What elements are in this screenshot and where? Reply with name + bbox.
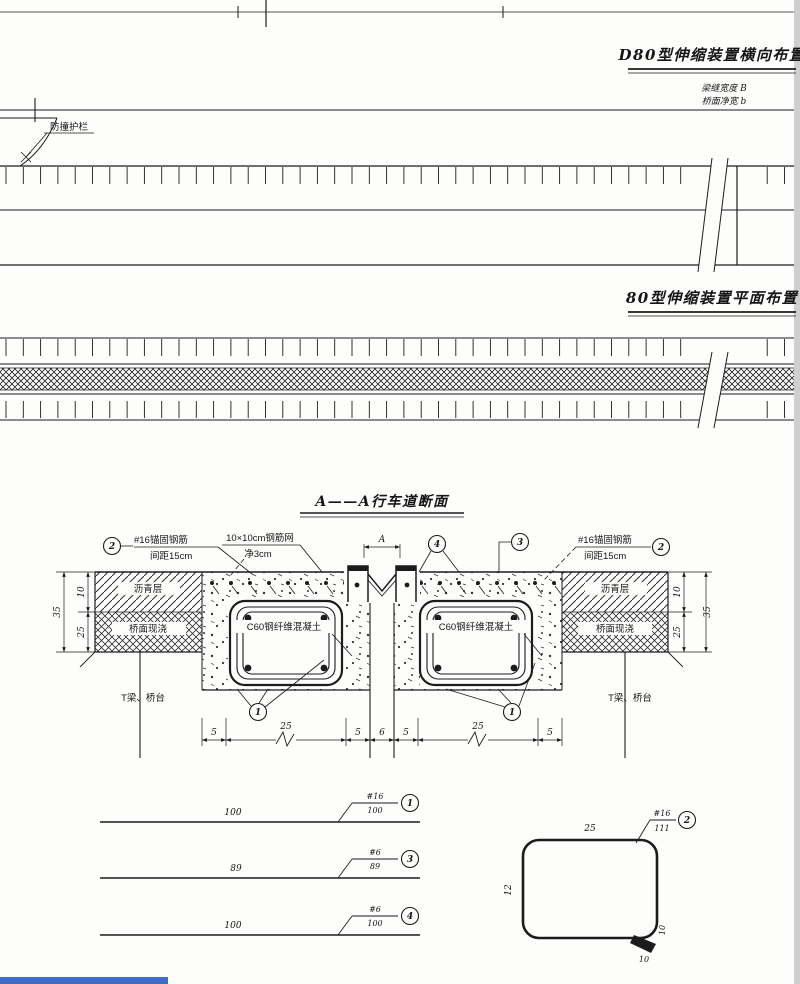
- anchor-rebar-spacing-left: 间距15cm: [150, 550, 192, 562]
- callout-1-right: 1: [509, 708, 515, 718]
- callout-4: 4: [434, 540, 440, 550]
- bar1-total: 100: [367, 806, 382, 815]
- bar4-length: 100: [224, 921, 241, 931]
- stirrup-detail-2: 25 12 #16 111 2 10 10: [504, 809, 696, 964]
- bar4-total: 100: [367, 919, 382, 928]
- dim-5d: 5: [547, 728, 553, 738]
- cad-drawing: D80型伸缩装置横向布置 梁缝宽度 B 桥面净宽 b 防撞护栏: [0, 0, 800, 984]
- bar3-total: 89: [370, 862, 380, 871]
- section-title: A——A行车道断面: [313, 493, 450, 510]
- anchor-rebar-spacing-right: 间距15cm: [584, 550, 626, 562]
- anchor-rebar-label-right: #16锚固钢筋: [578, 534, 632, 546]
- callout-1-left: 1: [255, 708, 261, 718]
- bar-detail-3: 89 #6 89 3: [100, 848, 420, 878]
- dim-6: 6: [379, 728, 385, 738]
- c60-label-right: C60钢纤维混凝土: [439, 621, 514, 633]
- rebar-details: 100 #16 100 1 89 #6 89 3 100 #6 100: [100, 792, 696, 964]
- gap-mark-label: A: [378, 535, 386, 545]
- anchor-rebar-label-left: #16锚固钢筋: [134, 534, 188, 546]
- dim-25-right: 25: [673, 626, 683, 639]
- dim-5a: 5: [211, 728, 217, 738]
- bar4-callout: 4: [407, 912, 413, 922]
- callout-3: 3: [517, 538, 523, 548]
- dim-35-left: 35: [53, 606, 63, 618]
- break-symbol: [698, 158, 728, 272]
- stirrup-height: 12: [504, 884, 514, 896]
- dim-5b: 5: [355, 728, 361, 738]
- callout-2-left: 2: [108, 542, 115, 552]
- mesh-label: 10×10cm钢筋网: [226, 532, 294, 544]
- transverse-title: D80型伸缩装置横向布置: [618, 46, 800, 64]
- barrier-label: 防撞护栏: [50, 121, 89, 133]
- tbeam-label-left: T梁、桥台: [121, 692, 165, 704]
- scan-edge-strip: [794, 0, 800, 984]
- bar4-spec: #6: [369, 905, 381, 914]
- section-view: A——A行车道断面: [53, 493, 713, 758]
- stirrup-width: 25: [583, 824, 596, 834]
- bar-detail-4: 100 #6 100 4: [100, 905, 420, 935]
- callout-2-right: 2: [657, 543, 664, 553]
- right-vertical-dimensions: 10 25 35: [668, 572, 713, 652]
- dim-10-right: 10: [673, 586, 683, 598]
- dim-25-left: 25: [77, 626, 87, 639]
- deck-pour-label-left: 桥面现浇: [129, 623, 168, 635]
- plan-layout-view: 80型伸缩装置平面布置: [0, 289, 799, 428]
- bar-detail-1: 100 #16 100 1: [100, 792, 420, 822]
- deck-pour-label-right: 桥面现浇: [596, 623, 635, 635]
- mesh-spacing-label: 净3cm: [244, 548, 272, 560]
- stirrup-hook-dim: 10: [639, 955, 649, 964]
- expansion-joint-profile: [344, 556, 420, 603]
- left-vertical-dimensions: 10 25 35: [53, 572, 95, 652]
- stirrup-spec: #16: [654, 809, 671, 818]
- transverse-layout-view: D80型伸缩装置横向布置 梁缝宽度 B 桥面净宽 b 防撞护栏: [0, 46, 800, 272]
- tick-marks-plan-top: [6, 339, 785, 356]
- bar3-length: 89: [230, 864, 242, 874]
- bottom-blue-bar: [0, 977, 168, 984]
- elevation-band: [0, 158, 794, 272]
- crash-barrier: 防撞护栏: [0, 118, 94, 166]
- drawing-sheet: D80型伸缩装置横向布置 梁缝宽度 B 桥面净宽 b 防撞护栏: [0, 0, 800, 984]
- bar3-spec: #6: [369, 848, 381, 857]
- dim-35-right: 35: [703, 606, 713, 618]
- dim-5c: 5: [403, 728, 409, 738]
- tbeam-label-right: T梁、桥台: [608, 692, 652, 704]
- tick-marks-plan-bottom: [6, 401, 785, 418]
- top-reference-marks: [0, 0, 794, 27]
- plan-band: [0, 338, 794, 428]
- bar1-spec: #16: [367, 792, 384, 801]
- dim-25b: 25: [471, 722, 484, 732]
- stirrup-hook-side-dim: 10: [658, 925, 667, 935]
- bar1-length: 100: [224, 808, 241, 818]
- plan-title: 80型伸缩装置平面布置: [626, 289, 799, 307]
- dim-25a: 25: [279, 722, 292, 732]
- stirrup-total: 111: [654, 824, 669, 833]
- note-clear-width: 桥面净宽 b: [702, 96, 747, 107]
- tick-marks-elevation: [6, 167, 785, 184]
- stirrup-callout: 2: [683, 816, 690, 826]
- dim-10-left: 10: [77, 586, 87, 598]
- joint-strip-hatch: [0, 368, 794, 390]
- asphalt-label-left: 沥青层: [134, 583, 163, 595]
- asphalt-label-right: 沥青层: [601, 583, 630, 595]
- bar1-callout: 1: [407, 799, 413, 809]
- bar3-callout: 3: [407, 855, 413, 865]
- c60-label-left: C60钢纤维混凝土: [247, 621, 322, 633]
- note-gap-width: 梁缝宽度 B: [701, 83, 747, 94]
